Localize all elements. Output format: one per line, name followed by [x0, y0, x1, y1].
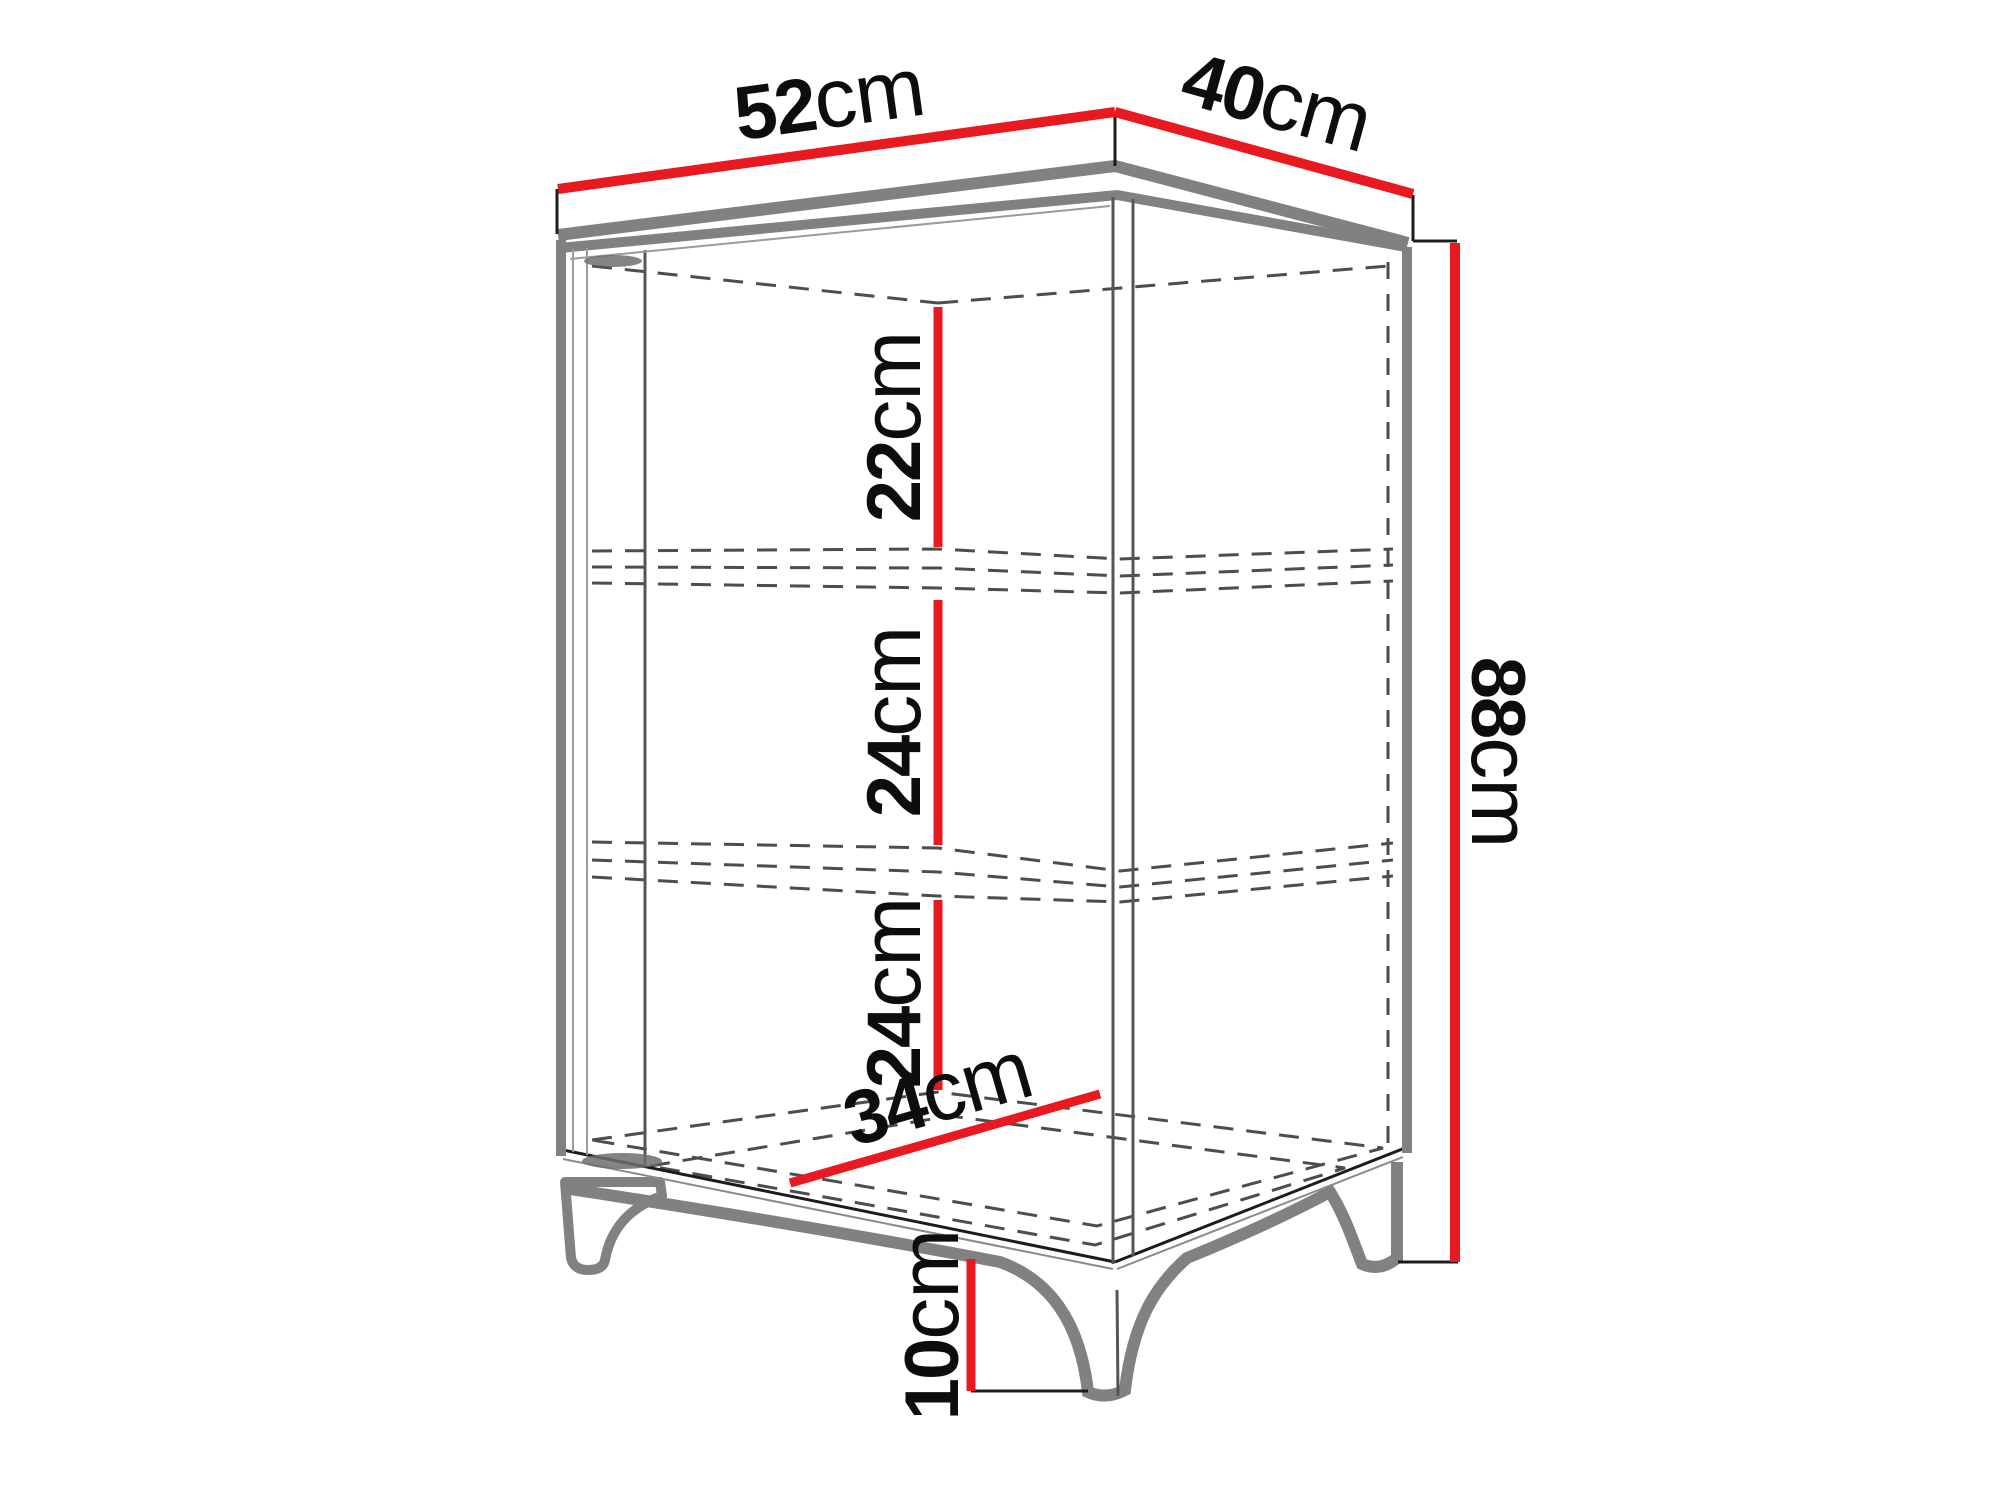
cabinet-body	[557, 112, 1410, 1396]
leg-height-unit: cm	[882, 1230, 976, 1340]
door-top-shadow	[584, 255, 642, 267]
svg-text:24cm: 24cm	[844, 627, 938, 818]
shelf-top-line-1	[592, 549, 1393, 559]
total-height-value: 88	[1455, 657, 1540, 738]
top-width-value: 52	[729, 62, 820, 157]
shelf-bottom-line-3	[592, 876, 1393, 902]
label-total-height: 88cm	[1454, 657, 1548, 848]
shelf-bottom-line-1	[592, 842, 1393, 871]
compartment-middle-value: 24	[852, 735, 937, 817]
center-leg-split-line	[1117, 1290, 1118, 1396]
shelf-top-line-3	[592, 581, 1393, 593]
compartment-top-value: 22	[852, 442, 937, 523]
shelf-bottom-line-2	[592, 860, 1393, 887]
leg-height-value: 10	[890, 1340, 975, 1421]
label-compartment-middle: 24cm	[844, 627, 938, 818]
svg-text:10cm: 10cm	[882, 1230, 976, 1421]
furniture-dimension-diagram: 52cm 40cm 88cm 22cm 24cm 24cm 34cm 10cm	[0, 0, 2000, 1500]
svg-text:88cm: 88cm	[1454, 657, 1548, 848]
ceiling-back-right-edge	[938, 266, 1388, 303]
door-bottom-shadow	[582, 1153, 662, 1169]
top-width-unit: cm	[808, 39, 930, 147]
compartment-bottom-unit: cm	[844, 898, 938, 1008]
label-leg-height: 10cm	[882, 1230, 976, 1421]
cabinet-drawing-canvas: 52cm 40cm 88cm 22cm 24cm 24cm 34cm 10cm	[0, 0, 2000, 1500]
compartment-top-unit: cm	[844, 332, 938, 442]
shelf-top-line-2	[592, 565, 1393, 576]
compartment-middle-unit: cm	[844, 627, 938, 737]
label-compartment-top: 22cm	[844, 332, 938, 523]
svg-text:22cm: 22cm	[844, 332, 938, 523]
total-height-unit: cm	[1454, 737, 1548, 847]
